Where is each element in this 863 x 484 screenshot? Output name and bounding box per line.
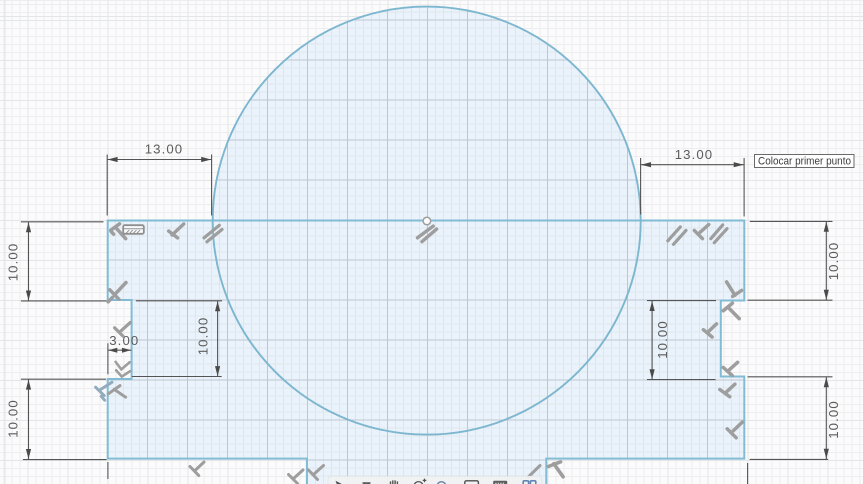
svg-text:13.00: 13.00 <box>145 142 184 157</box>
svg-text:13.00: 13.00 <box>675 147 714 162</box>
svg-text:10.00: 10.00 <box>826 400 841 439</box>
svg-text:10.00: 10.00 <box>6 399 21 438</box>
svg-text:10.00: 10.00 <box>826 242 841 281</box>
svg-text:3.00: 3.00 <box>109 333 139 348</box>
svg-text:Colocar primer punto: Colocar primer punto <box>758 155 851 167</box>
svg-text:10.00: 10.00 <box>6 243 21 282</box>
svg-text:10.00: 10.00 <box>196 317 211 356</box>
svg-text:10.00: 10.00 <box>655 320 670 359</box>
